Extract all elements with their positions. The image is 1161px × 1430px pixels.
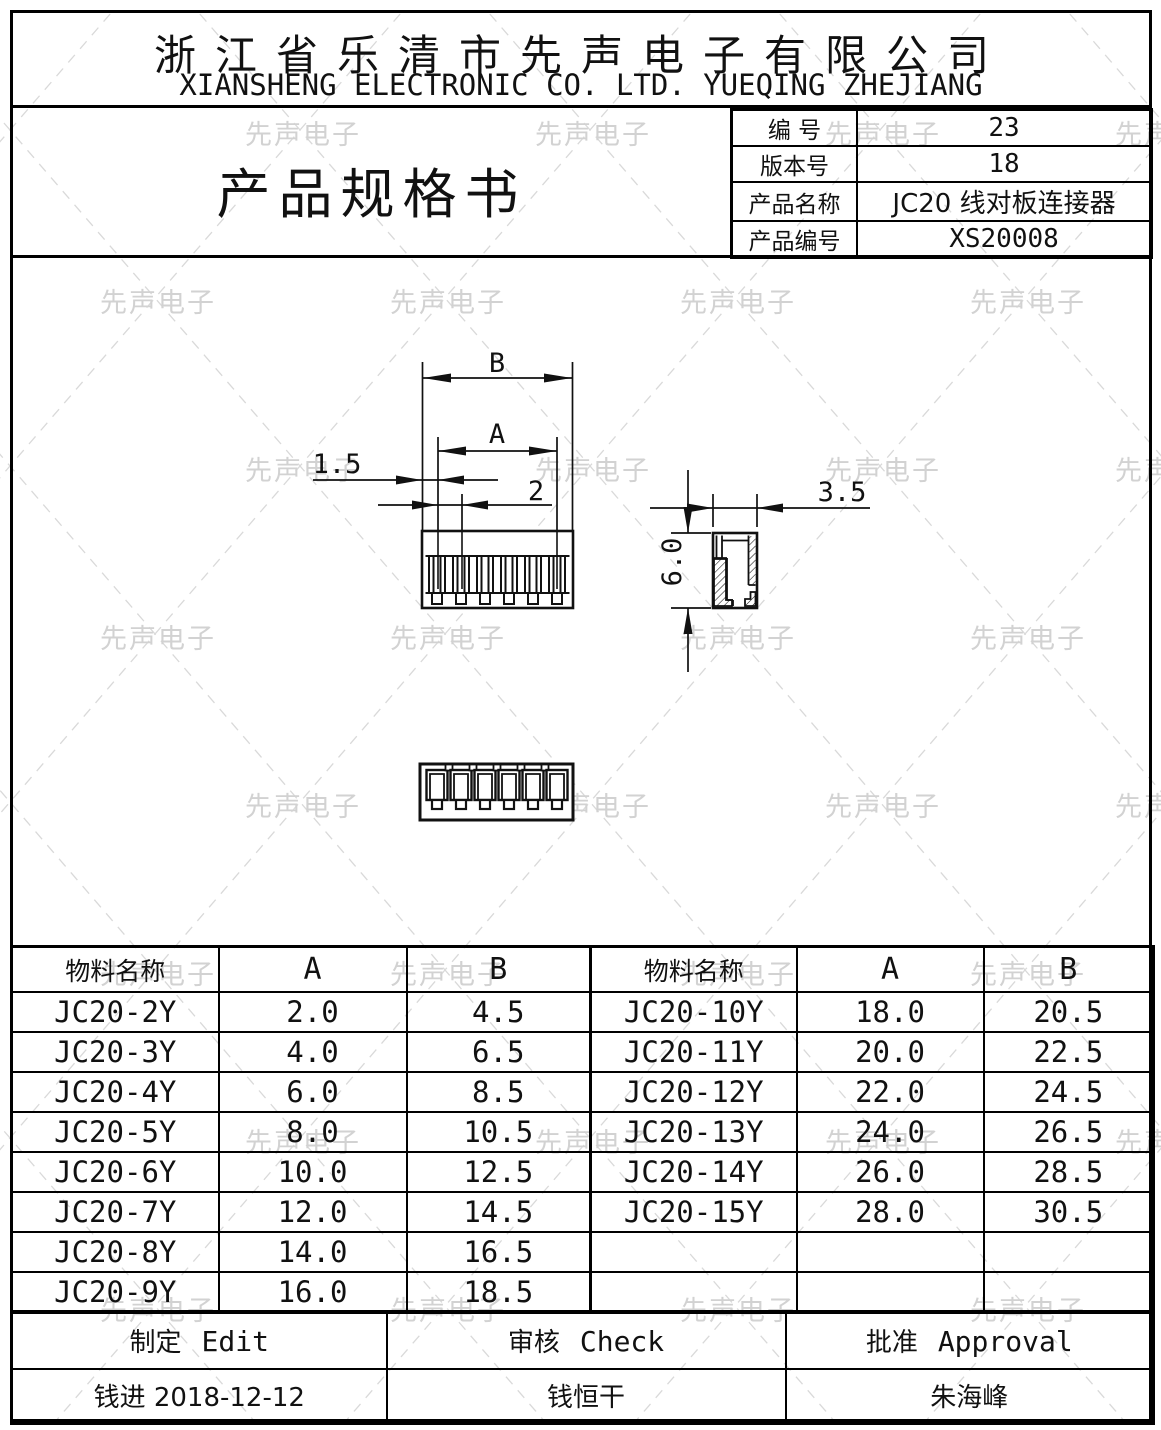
table-row: JC20-10Y18.020.5 <box>591 992 1154 1032</box>
dim-a-cell: 12.0 <box>219 1192 407 1232</box>
dim-a-cell: 4.0 <box>219 1032 407 1072</box>
dim-b-cell: 30.5 <box>984 1192 1154 1232</box>
info-row-product-number: 产品编号 XS20008 <box>732 221 1152 258</box>
approval-cell-approval: 批准Approval <box>786 1312 1154 1369</box>
check-label-en: Check <box>580 1325 664 1358</box>
spec-header-row: 物料名称 A B <box>12 947 591 993</box>
dim-b-cell: 8.5 <box>407 1072 591 1112</box>
dim-b-cell <box>984 1272 1154 1313</box>
spec-table-left: 物料名称 A B JC20-2Y2.04.5JC20-3Y4.06.5JC20-… <box>10 945 592 1314</box>
dim-a-cell <box>797 1272 984 1313</box>
part-name-cell: JC20-7Y <box>12 1192 219 1232</box>
table-row <box>591 1232 1154 1272</box>
info-label-number: 编 号 <box>732 110 858 147</box>
part-name-cell: JC20-14Y <box>591 1152 797 1192</box>
part-name-cell <box>591 1232 797 1272</box>
dim-b-cell: 14.5 <box>407 1192 591 1232</box>
editor-signature: 钱进 2018-12-12 <box>12 1369 387 1424</box>
table-row: JC20-4Y6.08.5 <box>12 1072 591 1112</box>
dim-a-cell: 18.0 <box>797 992 984 1032</box>
dim-b-cell: 22.5 <box>984 1032 1154 1072</box>
part-name-cell: JC20-13Y <box>591 1112 797 1152</box>
col-header-material-name: 物料名称 <box>591 947 797 993</box>
table-row: JC20-6Y10.012.5 <box>12 1152 591 1192</box>
part-name-cell: JC20-5Y <box>12 1112 219 1152</box>
dim-b-cell: 12.5 <box>407 1152 591 1192</box>
info-label-product-number: 产品编号 <box>732 221 858 258</box>
dim-b-cell: 4.5 <box>407 992 591 1032</box>
col-header-material-name: 物料名称 <box>12 947 219 993</box>
part-name-cell <box>591 1272 797 1313</box>
dim-a-cell: 8.0 <box>219 1112 407 1152</box>
company-name-en: XIANSHENG ELECTRONIC CO. LTD. YUEQING ZH… <box>13 68 1149 102</box>
spec-table-right: 物料名称 A B JC20-10Y18.020.5JC20-11Y20.022.… <box>589 945 1155 1314</box>
spec-sheet-page: 先声电子先声电子先声电子先声电子先声电子先声电子先声电子先声电子先声电子先声电子… <box>0 0 1161 1430</box>
dim-a-cell: 20.0 <box>797 1032 984 1072</box>
table-row: JC20-5Y8.010.5 <box>12 1112 591 1152</box>
dim-b-cell: 16.5 <box>407 1232 591 1272</box>
col-header-b: B <box>407 947 591 993</box>
table-row: JC20-3Y4.06.5 <box>12 1032 591 1072</box>
doc-info-table: 编 号 23 版本号 18 产品名称 JC20 线对板连接器 产品编号 XS20… <box>730 108 1153 259</box>
table-row: JC20-14Y26.028.5 <box>591 1152 1154 1192</box>
part-name-cell: JC20-3Y <box>12 1032 219 1072</box>
dim-a-cell: 22.0 <box>797 1072 984 1112</box>
table-row: JC20-12Y22.024.5 <box>591 1072 1154 1112</box>
dim-a-cell: 28.0 <box>797 1192 984 1232</box>
edit-label-cn: 制定 <box>130 1328 182 1358</box>
info-value-number: 23 <box>857 110 1152 147</box>
col-header-a: A <box>219 947 407 993</box>
approval-label-cn: 批准 <box>866 1328 918 1358</box>
check-label-cn: 审核 <box>508 1328 560 1358</box>
part-name-cell: JC20-15Y <box>591 1192 797 1232</box>
table-row: JC20-8Y14.016.5 <box>12 1232 591 1272</box>
info-row-product-name: 产品名称 JC20 线对板连接器 <box>732 182 1152 221</box>
approval-table: 制定Edit 审核Check 批准Approval 钱进 2018-12-12 … <box>10 1310 1155 1425</box>
dim-b-cell: 20.5 <box>984 992 1154 1032</box>
dim-a-cell: 6.0 <box>219 1072 407 1112</box>
dim-b-cell <box>984 1232 1154 1272</box>
table-row: JC20-11Y20.022.5 <box>591 1032 1154 1072</box>
approval-cell-edit: 制定Edit <box>12 1312 387 1369</box>
spec-header-row: 物料名称 A B <box>591 947 1154 993</box>
part-name-cell: JC20-6Y <box>12 1152 219 1192</box>
part-name-cell: JC20-8Y <box>12 1232 219 1272</box>
dim-b-cell: 26.5 <box>984 1112 1154 1152</box>
approval-label-en: Approval <box>938 1325 1073 1358</box>
dim-a-cell: 24.0 <box>797 1112 984 1152</box>
part-name-cell: JC20-4Y <box>12 1072 219 1112</box>
approval-cell-check: 审核Check <box>387 1312 786 1369</box>
info-row-version: 版本号 18 <box>732 146 1152 182</box>
table-row: JC20-9Y16.018.5 <box>12 1272 591 1313</box>
dim-a-cell: 16.0 <box>219 1272 407 1313</box>
col-header-b: B <box>984 947 1154 993</box>
info-value-version: 18 <box>857 146 1152 182</box>
table-row: JC20-7Y12.014.5 <box>12 1192 591 1232</box>
table-row <box>591 1272 1154 1313</box>
col-header-a: A <box>797 947 984 993</box>
dim-a-cell: 26.0 <box>797 1152 984 1192</box>
info-value-product-name: JC20 线对板连接器 <box>857 182 1152 221</box>
info-label-product-name: 产品名称 <box>732 182 858 221</box>
part-name-cell: JC20-2Y <box>12 992 219 1032</box>
part-name-cell: JC20-11Y <box>591 1032 797 1072</box>
table-row: JC20-15Y28.030.5 <box>591 1192 1154 1232</box>
part-name-cell: JC20-12Y <box>591 1072 797 1112</box>
info-row-number: 编 号 23 <box>732 110 1152 147</box>
info-value-product-number: XS20008 <box>857 221 1152 258</box>
part-name-cell: JC20-9Y <box>12 1272 219 1313</box>
dim-b-cell: 24.5 <box>984 1072 1154 1112</box>
dim-b-cell: 10.5 <box>407 1112 591 1152</box>
table-row: JC20-2Y2.04.5 <box>12 992 591 1032</box>
part-name-cell: JC20-10Y <box>591 992 797 1032</box>
dim-a-cell <box>797 1232 984 1272</box>
checker-signature: 钱恒干 <box>387 1369 786 1424</box>
approver-signature: 朱海峰 <box>786 1369 1154 1424</box>
approval-signer-row: 钱进 2018-12-12 钱恒干 朱海峰 <box>12 1369 1154 1424</box>
table-row: JC20-13Y24.026.5 <box>591 1112 1154 1152</box>
dim-b-cell: 6.5 <box>407 1032 591 1072</box>
info-label-version: 版本号 <box>732 146 858 182</box>
dim-a-cell: 14.0 <box>219 1232 407 1272</box>
document-title: 产品规格书 <box>13 150 730 229</box>
dim-a-cell: 2.0 <box>219 992 407 1032</box>
dim-b-cell: 28.5 <box>984 1152 1154 1192</box>
dim-a-cell: 10.0 <box>219 1152 407 1192</box>
approval-label-row: 制定Edit 审核Check 批准Approval <box>12 1312 1154 1369</box>
dim-b-cell: 18.5 <box>407 1272 591 1313</box>
edit-label-en: Edit <box>202 1325 269 1358</box>
